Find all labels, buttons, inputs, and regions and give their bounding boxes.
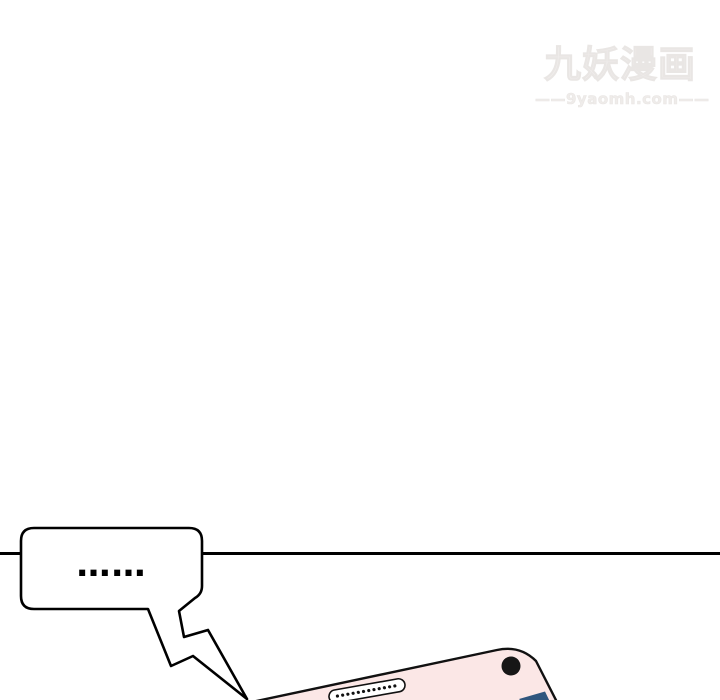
- comic-page: 九妖漫画 ——9yaomh.com——: [0, 0, 720, 700]
- phone-camera-lens-icon: [502, 657, 521, 676]
- phone-illustration: [233, 649, 559, 700]
- speech-bubble-text: ……: [21, 528, 202, 609]
